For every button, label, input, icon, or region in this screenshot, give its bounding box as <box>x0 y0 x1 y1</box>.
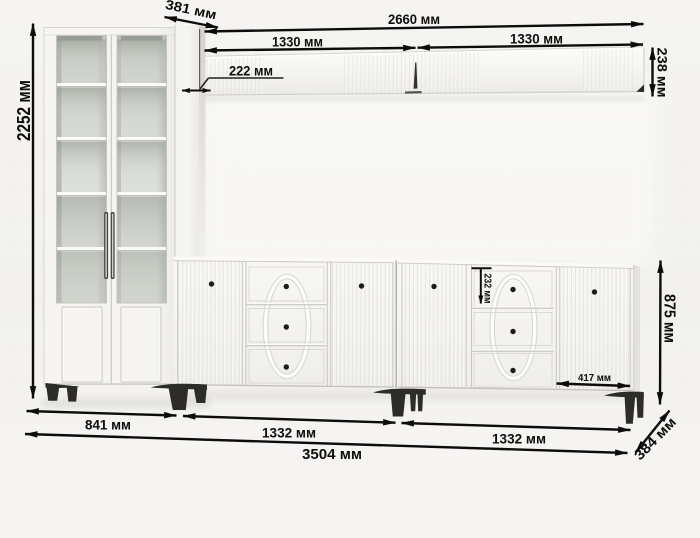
svg-text:1330 мм: 1330 мм <box>510 31 563 46</box>
svg-text:841 мм: 841 мм <box>85 417 131 433</box>
svg-text:1332 мм: 1332 мм <box>262 425 316 441</box>
svg-text:1332 мм: 1332 мм <box>492 431 546 447</box>
svg-text:1330 мм: 1330 мм <box>272 34 323 49</box>
svg-text:875 мм: 875 мм <box>661 294 678 343</box>
svg-text:3504 мм: 3504 мм <box>302 446 362 463</box>
svg-text:238 мм: 238 мм <box>655 48 670 98</box>
svg-text:222 мм: 222 мм <box>229 64 273 79</box>
svg-text:417 мм: 417 мм <box>578 372 611 384</box>
svg-text:2660 мм: 2660 мм <box>388 12 440 27</box>
svg-text:2252 мм: 2252 мм <box>14 80 34 141</box>
svg-text:232 мм: 232 мм <box>482 274 493 304</box>
